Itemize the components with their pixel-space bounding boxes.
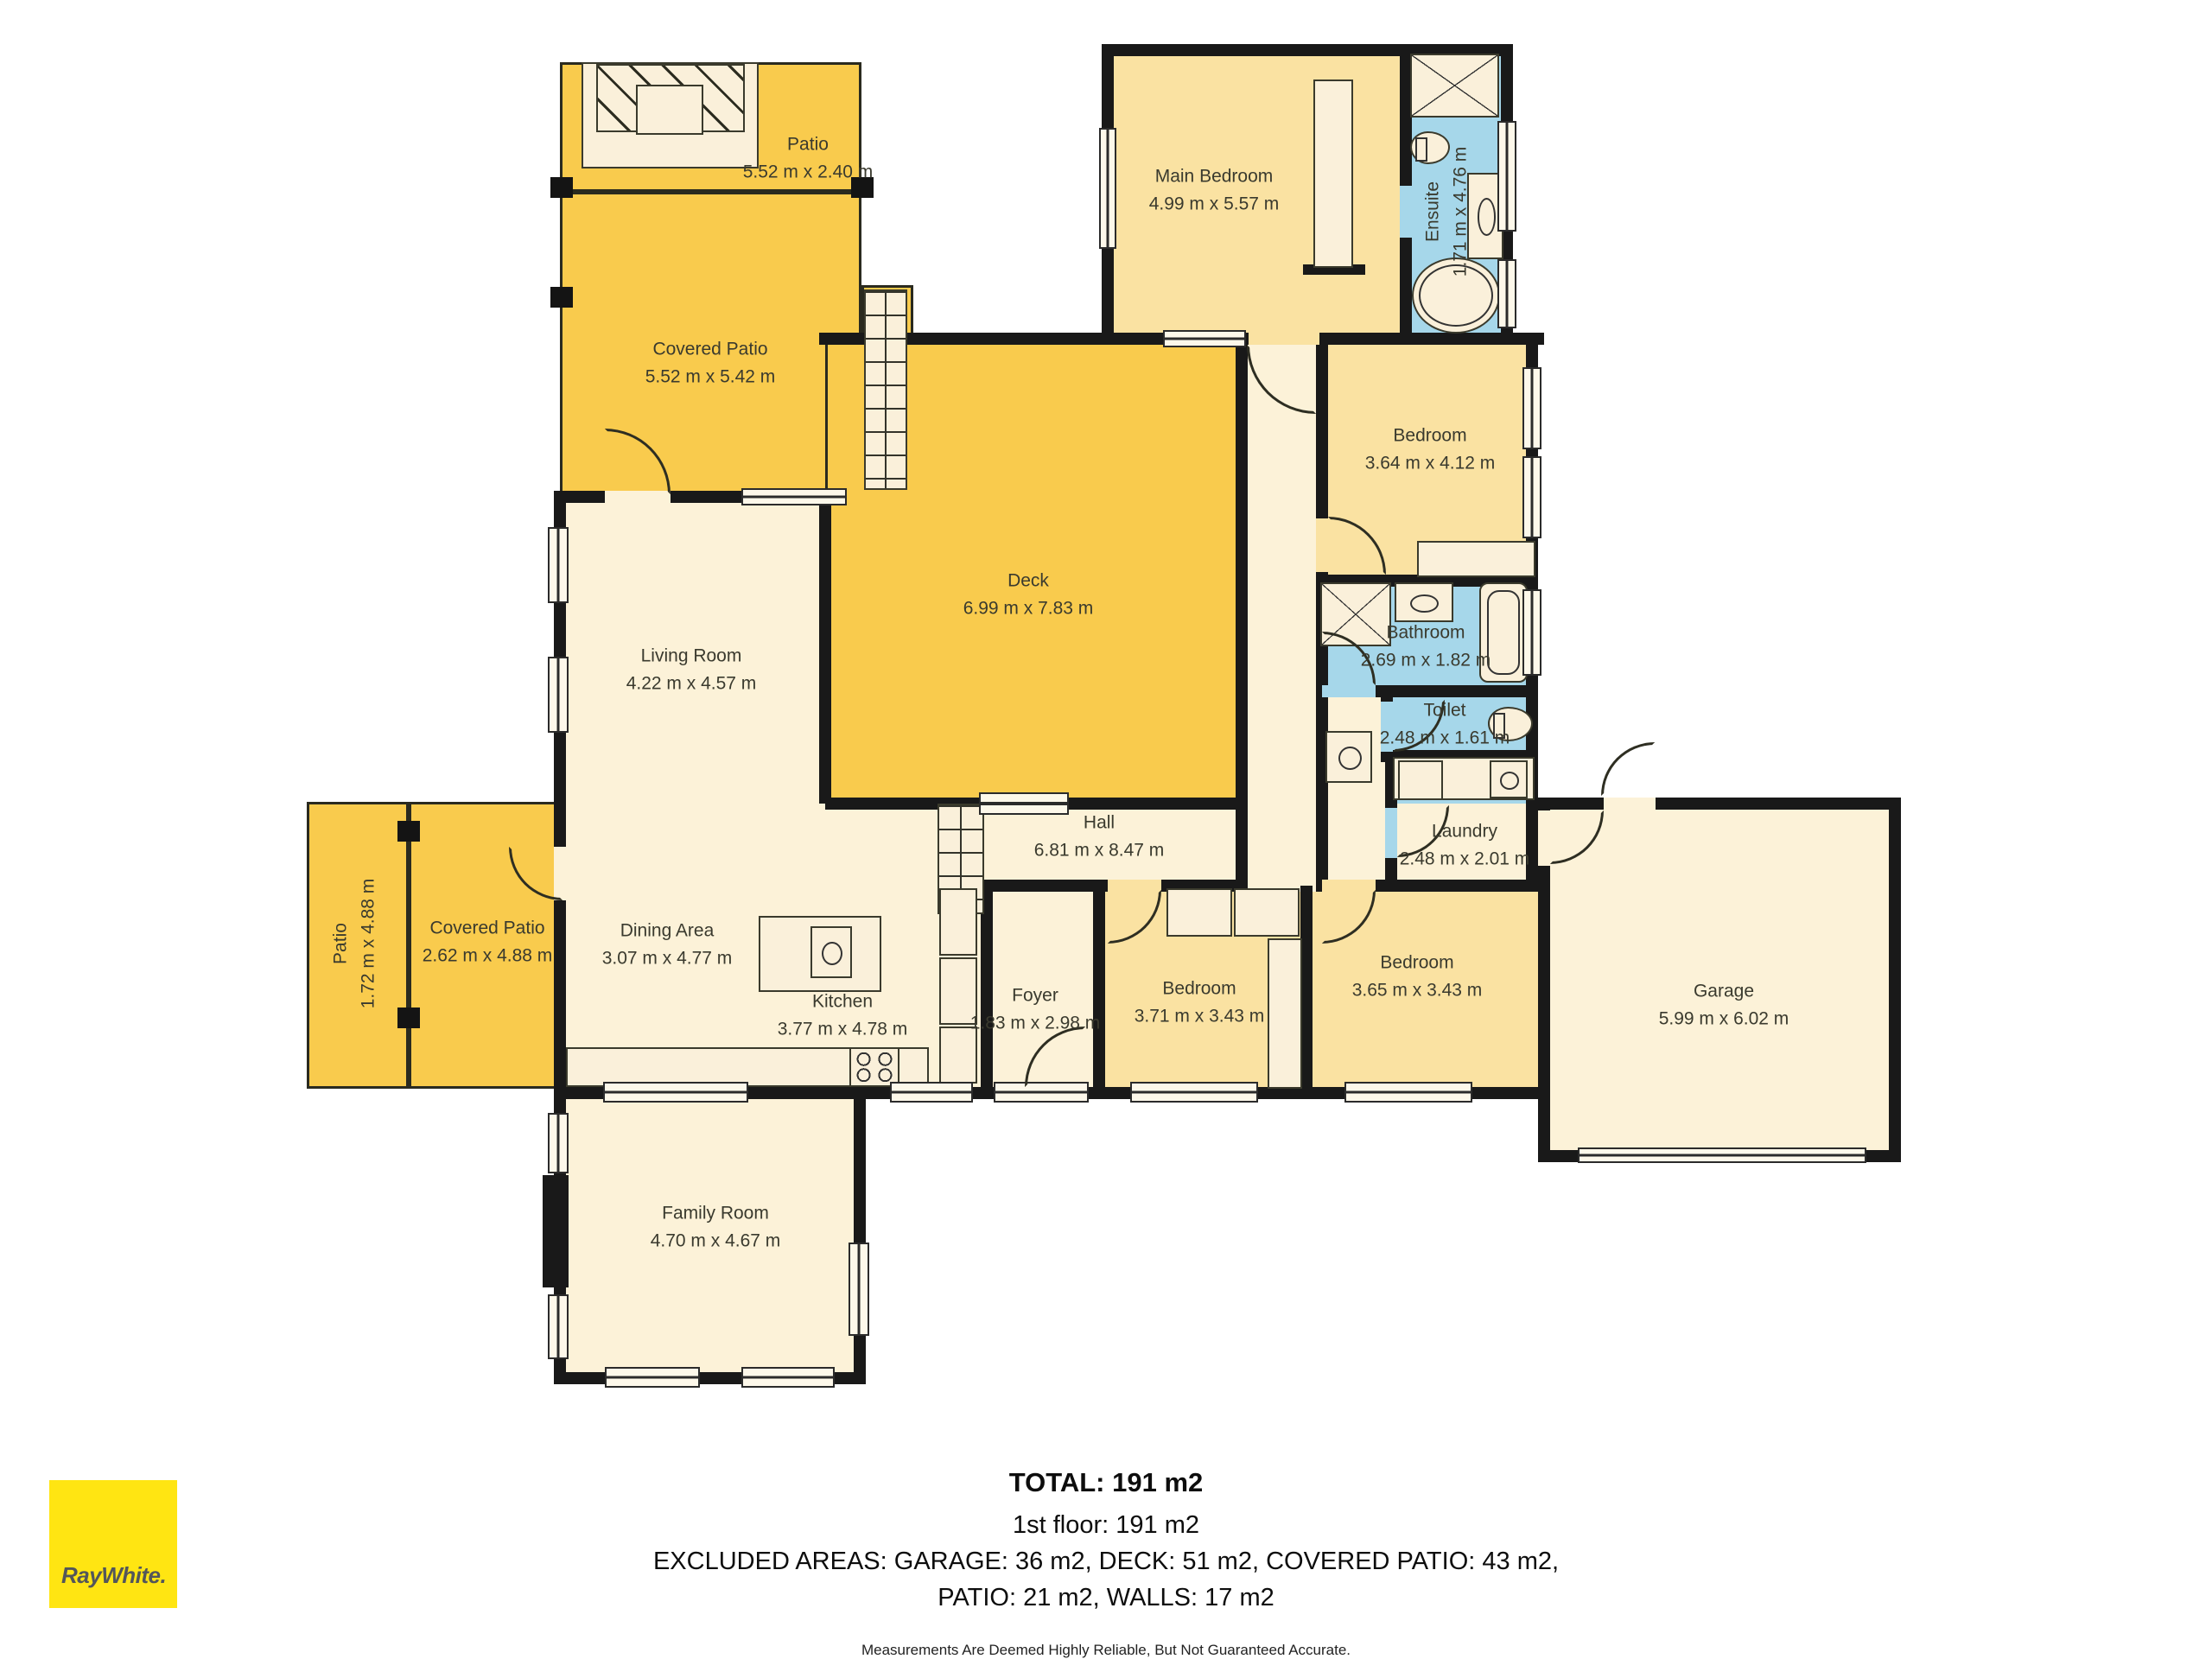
room-label-bedroom-top-right: Bedroom3.64 m x 4.12 m [1365, 423, 1496, 477]
window [1522, 589, 1541, 676]
doorway-opening [1322, 685, 1376, 697]
room-label-living-room: Living Room4.22 m x 4.57 m [626, 643, 757, 697]
deck-stairs-fixture [864, 289, 907, 490]
patio-post [397, 1007, 420, 1028]
ensuite-shower-fixture [1410, 54, 1499, 118]
wall [1889, 798, 1901, 1162]
laundry-washer-fixture [1398, 760, 1443, 800]
wall [819, 333, 868, 345]
room-name: Living Room [626, 643, 757, 671]
room-name: Laundry [1400, 818, 1530, 846]
bedroom-closet-fixture [1268, 938, 1302, 1089]
room-dimensions: 3.64 m x 4.12 m [1365, 449, 1496, 477]
room-dimensions: 4.22 m x 4.57 m [626, 670, 757, 697]
window [741, 1367, 835, 1388]
room-name: Bathroom [1361, 620, 1491, 647]
room-name: Patio [743, 131, 874, 159]
window [1497, 259, 1516, 328]
room-dimensions: 6.99 m x 7.83 m [963, 594, 1094, 622]
room-name: Ensuite [1420, 147, 1447, 277]
room-dimensions: 3.77 m x 4.78 m [778, 1015, 908, 1043]
disclaimer: Measurements Are Deemed Highly Reliable,… [0, 1642, 2212, 1659]
raywhite-logo: RayWhite. [49, 1480, 177, 1608]
room-name: Bedroom [1135, 976, 1265, 1003]
doorway-opening [1316, 518, 1328, 572]
room-label-dining-area: Dining Area3.07 m x 4.77 m [602, 918, 733, 972]
room-dimensions: 5.99 m x 6.02 m [1659, 1005, 1789, 1033]
window [1497, 121, 1516, 232]
wall [854, 1093, 866, 1384]
window [1130, 1082, 1258, 1103]
window [605, 1367, 700, 1388]
window [741, 488, 847, 505]
window [1522, 456, 1541, 538]
room-dimensions: 3.07 m x 4.77 m [602, 944, 733, 972]
room-dimensions: 3.65 m x 3.43 m [1352, 976, 1483, 1004]
room-dimensions: 5.52 m x 2.40 m [743, 158, 874, 186]
room-name: Toilet [1380, 697, 1510, 725]
patio-post [550, 287, 573, 308]
room-name: Family Room [651, 1200, 781, 1228]
room-label-covered-patio-left: Covered Patio2.62 m x 4.88 m [423, 915, 553, 969]
window [603, 1082, 748, 1103]
wall [1236, 333, 1248, 892]
total-area: TOTAL: 191 m2 [0, 1467, 2212, 1498]
window [548, 1294, 569, 1359]
room-label-family-room: Family Room4.70 m x 4.67 m [651, 1200, 781, 1255]
floorplan-page: { "branding": { "logo_text": "RayWhite."… [0, 0, 2212, 1659]
room-label-covered-patio-top: Covered Patio5.52 m x 5.42 m [645, 336, 776, 391]
room-name: Bedroom [1365, 423, 1496, 450]
room-label-toilet: Toilet2.48 m x 1.61 m [1380, 697, 1510, 752]
wall [819, 491, 831, 804]
main-bedroom-robe-fixture [1313, 79, 1353, 268]
bathroom-vanity-fixture [1395, 582, 1453, 622]
garage-door-fixture [1578, 1147, 1866, 1163]
patio-post [397, 821, 420, 842]
door-arc [1601, 742, 1655, 796]
room-name: Kitchen [778, 988, 908, 1016]
room-dimensions: 2.48 m x 2.01 m [1400, 845, 1530, 873]
window [849, 1243, 869, 1336]
room-name: Foyer [970, 982, 1101, 1010]
patio-post [550, 177, 573, 198]
room-label-ensuite: Ensuite1.71 m x 4.76 m [1420, 147, 1474, 277]
room-label-laundry: Laundry2.48 m x 2.01 m [1400, 818, 1530, 873]
room-dimensions: 2.69 m x 1.82 m [1361, 646, 1491, 674]
bedroom-robe-fixture [1417, 541, 1535, 577]
room-dimensions: 4.99 m x 5.57 m [1149, 190, 1280, 218]
excluded-areas-line1: EXCLUDED AREAS: GARAGE: 36 m2, DECK: 51 … [0, 1543, 2212, 1580]
doorway-opening [1385, 808, 1397, 858]
room-label-bedroom-bottom-right: Bedroom3.65 m x 3.43 m [1352, 950, 1483, 1004]
window [1163, 330, 1246, 347]
doorway-opening [1400, 186, 1412, 238]
room-name: Deck [963, 568, 1094, 595]
window [890, 1082, 973, 1103]
corridor-basin-fixture [1325, 731, 1372, 783]
raywhite-logo-text: RayWhite. [61, 1562, 166, 1589]
floor-plan: Patio5.52 m x 2.40 mCovered Patio5.52 m … [0, 0, 2212, 1659]
wall [543, 1175, 569, 1287]
room-name: Patio [327, 879, 355, 1009]
room-dimensions: 1.72 m x 4.88 m [354, 879, 382, 1009]
doorway-opening [1604, 798, 1656, 810]
pantry-1-fixture [939, 888, 977, 956]
room-label-foyer: Foyer1.83 m x 2.98 m [970, 982, 1101, 1037]
room-dimensions: 2.48 m x 1.61 m [1380, 724, 1510, 752]
excluded-areas-line2: PATIO: 21 m2, WALLS: 17 m2 [0, 1580, 2212, 1616]
hall-robe-2-fixture [1234, 888, 1300, 937]
room-name: Covered Patio [645, 336, 776, 364]
room-label-patio-top: Patio5.52 m x 2.40 m [743, 131, 874, 186]
window [1344, 1082, 1472, 1103]
room-label-bedroom-bottom-left: Bedroom3.71 m x 3.43 m [1135, 976, 1265, 1030]
floor-area: 1st floor: 191 m2 [0, 1507, 2212, 1543]
room-dimensions: 3.71 m x 3.43 m [1135, 1002, 1265, 1030]
room-name: Covered Patio [423, 915, 553, 943]
room-dimensions: 6.81 m x 8.47 m [1034, 836, 1165, 864]
hall-robe-1-fixture [1166, 888, 1232, 937]
spa-inner-fixture [636, 85, 703, 135]
window [548, 527, 569, 603]
room-dimensions: 4.70 m x 4.67 m [651, 1227, 781, 1255]
room-label-hall: Hall6.81 m x 8.47 m [1034, 810, 1165, 864]
room-name: Garage [1659, 978, 1789, 1006]
room-dimensions: 5.52 m x 5.42 m [645, 363, 776, 391]
room-dimensions: 1.83 m x 2.98 m [970, 1009, 1101, 1037]
room-dimensions: 1.71 m x 4.76 m [1446, 147, 1474, 277]
wall [1300, 886, 1313, 1093]
room-dimensions: 2.62 m x 4.88 m [423, 942, 553, 969]
room-corridor [1242, 339, 1322, 892]
room-label-main-bedroom: Main Bedroom4.99 m x 5.57 m [1149, 163, 1280, 218]
laundry-sink-fixture [1490, 760, 1528, 798]
room-name: Hall [1034, 810, 1165, 837]
room-label-kitchen: Kitchen3.77 m x 4.78 m [778, 988, 908, 1043]
room-label-garage: Garage5.99 m x 6.02 m [1659, 978, 1789, 1033]
window [1099, 128, 1116, 249]
doorway-opening [1538, 810, 1550, 866]
window [548, 1113, 569, 1173]
room-label-bathroom: Bathroom2.69 m x 1.82 m [1361, 620, 1491, 674]
room-name: Dining Area [602, 918, 733, 945]
room-name: Bedroom [1352, 950, 1483, 977]
room-name: Main Bedroom [1149, 163, 1280, 191]
doorway-opening [1249, 333, 1319, 345]
room-label-patio-left: Patio1.72 m x 4.88 m [327, 879, 382, 1009]
room-label-deck: Deck6.99 m x 7.83 m [963, 568, 1094, 622]
window [548, 657, 569, 733]
wall [1538, 798, 1901, 810]
window [1522, 367, 1541, 449]
island-sink-fixture [810, 926, 852, 978]
floor-plan-summary: TOTAL: 191 m2 1st floor: 191 m2 EXCLUDED… [0, 1467, 2212, 1659]
